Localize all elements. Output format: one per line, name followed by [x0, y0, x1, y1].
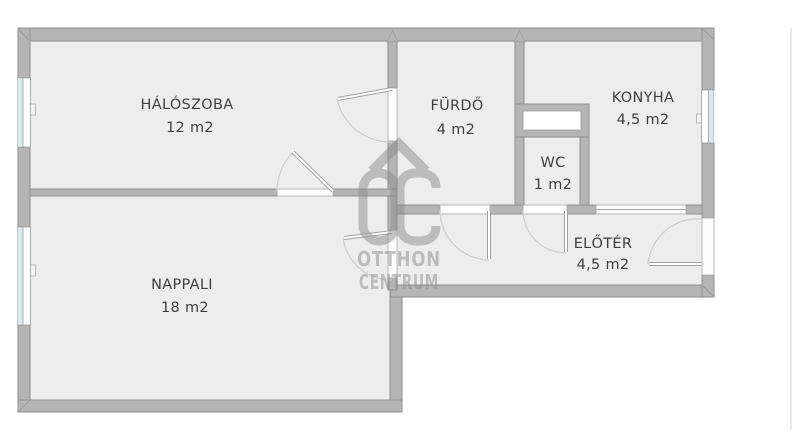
wall-left-3: [18, 325, 30, 412]
kitchen-window-handle: [697, 114, 702, 123]
floorplan-drawing: HÁLÓSZOBA 12 m2 NAPPALI 18 m2 FÜRDŐ 4 m2…: [0, 0, 800, 435]
room-area: 4,5 m2: [617, 112, 670, 128]
wall-right-2: [702, 143, 714, 218]
bedroom-window-frame: [23, 78, 31, 147]
wall-right-3: [702, 275, 714, 297]
room-name: HÁLÓSZOBA: [141, 95, 234, 113]
room-area: 1 m2: [534, 177, 572, 193]
room-name: NAPPALI: [151, 277, 213, 293]
room-name: ELŐTÉR: [574, 234, 633, 252]
opening-bathroom-bedroom-door: [388, 88, 397, 141]
room-name: KONYHA: [612, 90, 674, 106]
wall-center-vert-1: [388, 41, 397, 88]
wall-wc-konyha: [580, 137, 589, 205]
room-name: FÜRDŐ: [430, 96, 483, 114]
kitchen-window-frame: [702, 90, 709, 143]
room-area: 12 m2: [166, 120, 214, 136]
watermark-line1: OTTHON: [357, 247, 441, 271]
wall-right-1: [702, 28, 714, 90]
wall-nappali-right: [390, 297, 402, 400]
watermark-line2: CENTRUM: [359, 270, 439, 294]
bedroom-window-handle: [31, 104, 36, 115]
opening-bathroom-hall-door: [440, 205, 490, 214]
watermark-wordmark: OTTHON CENTRUM: [357, 247, 441, 294]
room-area: 4 m2: [437, 122, 475, 138]
wall-hall-top-2: [490, 205, 523, 214]
wall-bedroom-divider-1: [30, 189, 277, 196]
opening-bedroom-door: [277, 189, 333, 196]
wall-bottom: [18, 400, 402, 412]
wall-left-2: [18, 147, 30, 227]
shaft-duct: [523, 111, 581, 130]
living-window-glass: [18, 227, 24, 325]
floorplan-page: HÁLÓSZOBA 12 m2 NAPPALI 18 m2 FÜRDŐ 4 m2…: [0, 0, 800, 435]
opening-entrance-door: [702, 218, 714, 275]
room-name: WC: [540, 155, 565, 171]
kitchen-window-glass: [709, 90, 714, 143]
living-window-frame: [23, 227, 31, 325]
room-area: 18 m2: [161, 300, 209, 316]
wall-hall-top-3: [567, 205, 596, 214]
wall-hall-top-4: [686, 205, 702, 214]
bedroom-window-glass: [18, 78, 24, 147]
living-window-handle: [31, 265, 36, 276]
wall-top: [18, 28, 714, 41]
room-area: 4,5 m2: [577, 257, 630, 273]
opening-wc-door: [523, 205, 567, 214]
